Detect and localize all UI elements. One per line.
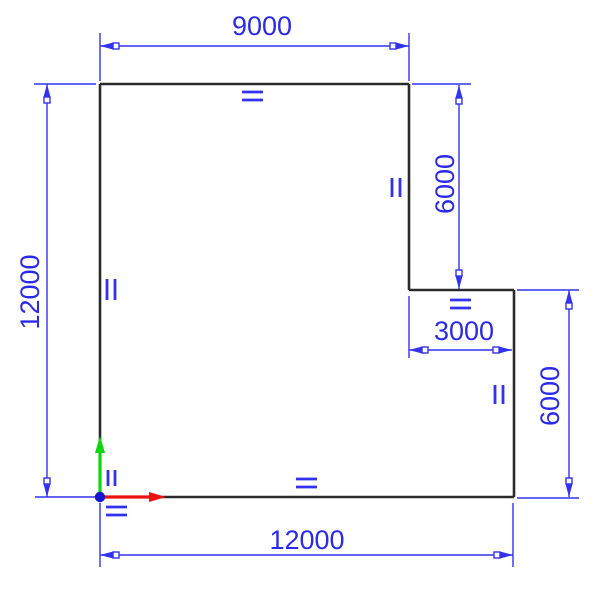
dim-arrow[interactable] [100,43,113,50]
dim-arrow[interactable] [500,552,513,559]
dim-grip[interactable] [493,347,499,353]
dim-grip[interactable] [456,98,462,104]
equal-constraint-top-edge-icon[interactable] [242,92,263,100]
equal-constraint-origin-icon[interactable] [106,507,127,515]
dim-arrow[interactable] [409,347,422,354]
dim-arrow[interactable] [44,84,51,97]
dim-grip[interactable] [566,303,572,309]
dim-grip[interactable] [44,478,50,484]
dimension-step-width[interactable]: 3000 [409,296,512,358]
dim-grip[interactable] [494,552,500,558]
dim-arrow[interactable] [456,276,463,289]
sketch-canvas[interactable]: 9000 12000 6000 3000 [0,0,604,598]
dim-arrow[interactable] [566,290,573,303]
dim-grip[interactable] [456,270,462,276]
parallel-constraint-left-edge-icon[interactable] [107,279,115,300]
dim-arrow[interactable] [100,552,113,559]
parallel-constraint-origin-icon[interactable] [108,470,115,486]
y-axis-arrowhead-icon [95,436,105,453]
dimension-value[interactable]: 9000 [232,11,292,41]
dim-arrow[interactable] [566,484,573,497]
origin-point[interactable] [95,492,105,502]
sketch-profile[interactable] [100,84,514,497]
origin-triad[interactable] [95,436,166,502]
dimension-left-height[interactable]: 12000 [15,84,98,497]
equal-constraint-step-edge-icon[interactable] [450,300,471,308]
dim-arrow[interactable] [396,43,409,50]
dimension-upper-right-height[interactable]: 6000 [412,84,471,289]
equal-constraint-bottom-edge-icon[interactable] [296,479,317,487]
dim-grip[interactable] [566,478,572,484]
dim-grip[interactable] [422,347,428,353]
dim-grip[interactable] [113,43,119,49]
dim-arrow[interactable] [456,85,463,98]
parallel-constraint-upper-right-edge-icon[interactable] [392,178,400,197]
dimension-value[interactable]: 6000 [430,154,460,214]
dimension-value[interactable]: 12000 [15,254,45,329]
dimension-lower-right-height[interactable]: 6000 [517,290,579,498]
dimension-value[interactable]: 6000 [535,366,565,426]
dim-arrow[interactable] [499,347,512,354]
dim-grip[interactable] [44,97,50,103]
dimension-value[interactable]: 12000 [269,525,344,555]
dim-grip[interactable] [390,43,396,49]
dim-grip[interactable] [113,552,119,558]
dimension-bottom-width[interactable]: 12000 [100,503,513,567]
x-axis-arrowhead-icon [149,492,166,502]
dim-arrow[interactable] [44,484,51,497]
parallel-constraint-lower-right-edge-icon[interactable] [495,385,503,404]
dimension-value[interactable]: 3000 [434,316,494,346]
dimension-top-width[interactable]: 9000 [100,11,409,81]
